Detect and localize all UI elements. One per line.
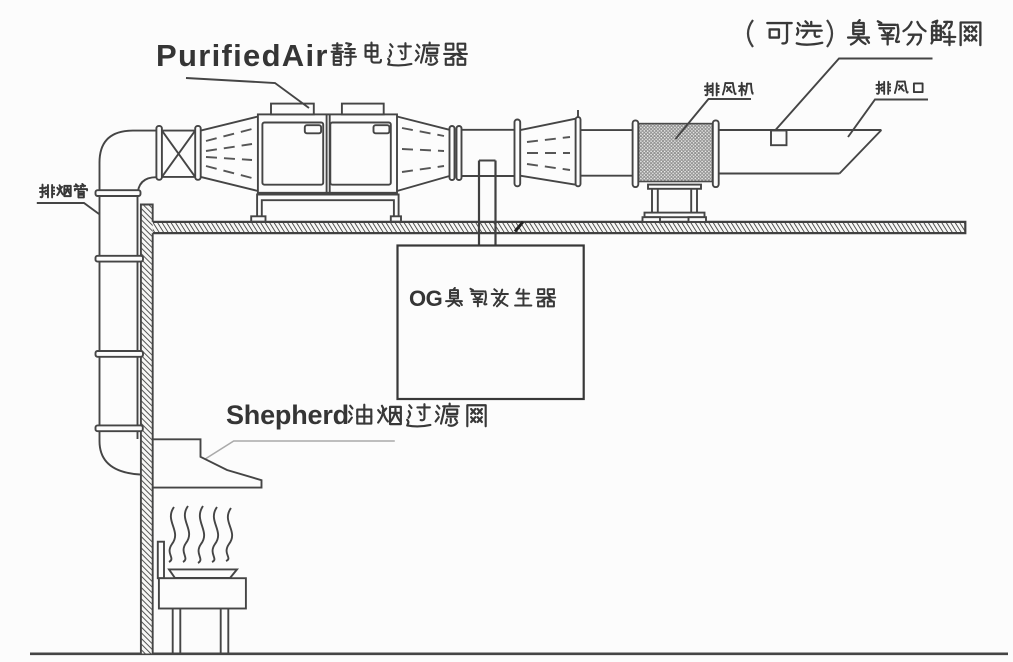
svg-text:OG: OG (409, 286, 442, 311)
svg-text:Shepherd: Shepherd (226, 400, 349, 430)
svg-text:PurifiedAir: PurifiedAir (156, 38, 329, 73)
